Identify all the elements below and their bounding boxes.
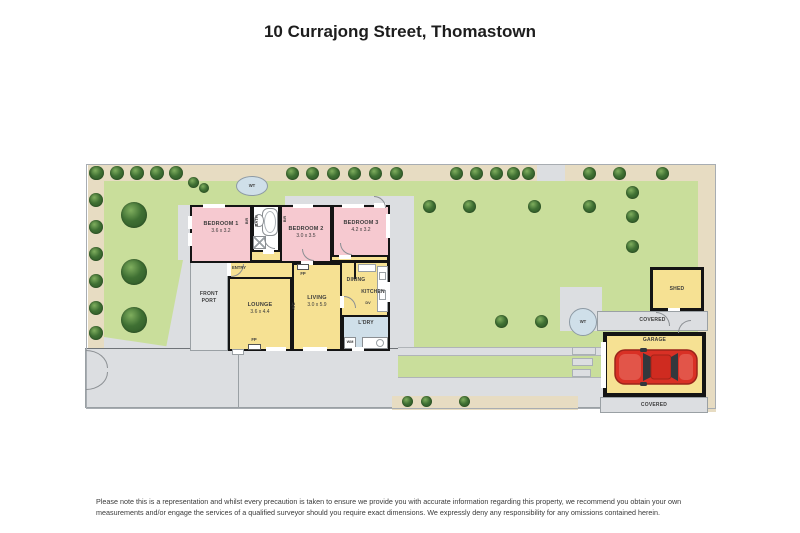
trough-bowl-icon [376,339,384,347]
front-porch [190,260,228,351]
room-label-bedroom3: BEDROOM 34.2 x 3.2 [334,220,388,234]
tree-icon [110,166,124,180]
garden-step [572,369,591,377]
fireplace-box [297,264,309,270]
garden-step [572,358,593,366]
robe-label: BIR [243,206,251,236]
dishwasher-label: DV [361,301,375,306]
laundry-trough [362,337,388,349]
garden-step [572,347,596,355]
window [293,204,313,208]
tree-icon [90,166,104,180]
disclaimer-text: Please note this is a representation and… [96,496,710,518]
kitchen-sink-icon [379,272,386,280]
door-gap [263,250,274,254]
window [303,347,327,351]
tree-icon [327,167,340,180]
tree-icon [535,315,548,328]
garage-label: GARAGE [603,337,706,344]
washing-machine-label: WM [344,340,356,345]
tree-icon [626,240,639,253]
fireplace-label: FP [296,271,310,276]
tree-icon [470,167,483,180]
door-gap [352,347,364,351]
room-label-entry: ENTRY [221,265,257,270]
robe-label: BIR [281,204,289,234]
bathtub-inner [264,211,276,233]
tree-icon [130,166,144,180]
tree-icon [626,210,639,223]
covered-lower-label: COVERED [600,402,708,409]
tree-icon [188,177,199,188]
tree-icon [121,307,147,333]
site-plan-page: 10 Currajong Street, Thomastown [0,0,800,533]
kitchen-counter-top [358,264,376,272]
tree-icon [528,200,541,213]
room-label-living: LIVING3.0 x 5.9 [294,295,340,309]
room-label-dining: DINING [338,277,374,284]
tree-icon [423,200,436,213]
tree-icon [450,167,463,180]
room-label-bedroom2: BEDROOM 23.0 x 3.5 [282,226,330,240]
tree-icon [89,326,103,340]
water-tank-label: WT [569,308,597,336]
window [188,233,192,246]
window [203,204,225,208]
room-label-front-porch: FRONT PORT [192,291,226,304]
tree-icon [306,167,319,180]
door-gap [339,255,351,259]
room-label-bedroom1: BEDROOM 13.6 x 3.2 [192,221,250,235]
window [342,204,364,208]
tree-icon [421,396,432,407]
tree-icon [89,301,103,315]
tree-icon [89,220,103,234]
covered-upper-label: COVERED [597,317,708,324]
tree-icon [89,193,103,207]
tree-icon [121,259,147,285]
tree-icon [150,166,164,180]
porch-step [232,349,244,355]
tree-icon [89,274,103,288]
tree-icon [583,167,596,180]
room-label-laundry: L'DRY [346,320,386,327]
tree-icon [369,167,382,180]
tree-icon [507,167,520,180]
tree-icon [286,167,299,180]
tree-icon [89,247,103,261]
garage-door-gap [601,342,606,388]
tree-icon [459,396,470,407]
shed-label: SHED [650,286,704,293]
tree-icon [656,167,669,180]
room-label-bath: BATH [252,206,262,236]
tree-icon [402,396,413,407]
tree-icon [169,166,183,180]
tree-icon [522,167,535,180]
tree-icon [495,315,508,328]
tree-icon [626,186,639,199]
room-label-lounge: LOUNGE3.6 x 4.4 [230,302,290,316]
tree-icon [199,183,209,193]
tree-icon [348,167,361,180]
water-tank-label: WT [236,176,268,196]
tree-icon [490,167,503,180]
car-icon [613,347,699,387]
fireplace-label: FP [246,337,262,342]
tree-icon [613,167,626,180]
site-plan: WT [0,0,800,533]
tree-icon [463,200,476,213]
tree-icon [390,167,403,180]
tree-icon [583,200,596,213]
fireplace-box [248,344,261,350]
window [266,347,286,351]
room-label-kitchen: KITCHEN [355,289,391,296]
tree-icon [121,202,147,228]
air-conditioner-label: A/C [289,291,299,321]
